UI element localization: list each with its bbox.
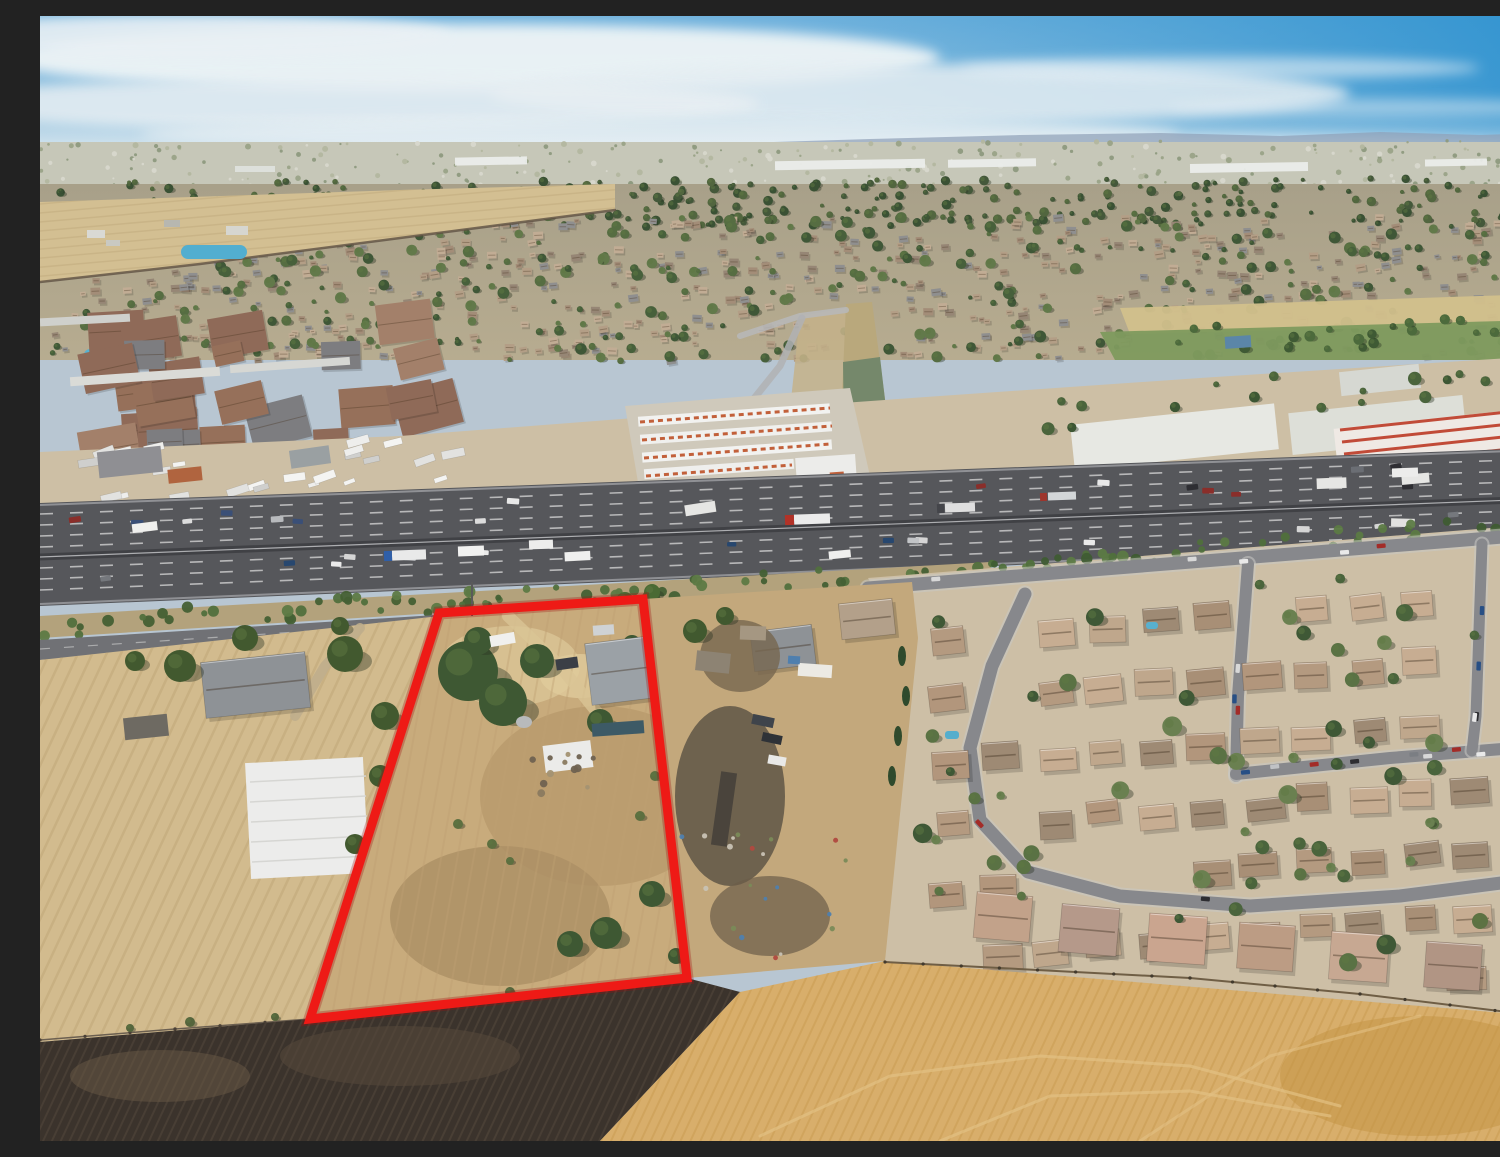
- warehouse: [455, 156, 527, 165]
- neighbor-shed: [695, 650, 731, 673]
- scene-layers: [40, 16, 1500, 1141]
- warehouse: [235, 166, 275, 172]
- semi-trailer: [945, 502, 975, 512]
- farm-shed: [123, 714, 169, 740]
- apartment-pool: [181, 245, 247, 259]
- box-truck: [1392, 468, 1418, 478]
- semi-trailer: [392, 549, 426, 560]
- tanker-cab: [1040, 493, 1047, 501]
- rv-camper: [798, 663, 833, 678]
- warehouse: [1425, 158, 1487, 166]
- field-structure: [106, 240, 120, 246]
- backyard-pool: [1146, 622, 1158, 629]
- field-structure: [164, 220, 180, 227]
- neighbor-shed: [740, 626, 766, 641]
- aerial-photo: [40, 16, 1500, 1141]
- blue-roof-building: [1225, 335, 1252, 349]
- tanker-truck: [1048, 492, 1076, 501]
- backyard-pool: [945, 731, 959, 739]
- semi-cab-blue: [384, 551, 392, 561]
- debris-dark-patch: [710, 876, 830, 956]
- cypress: [902, 686, 910, 706]
- semi-cab-dark: [937, 504, 944, 513]
- silver-car: [593, 624, 615, 635]
- farmhouse: [200, 652, 314, 722]
- two-story-house: [1423, 941, 1485, 995]
- field-structure: [226, 226, 248, 235]
- cypress: [894, 726, 902, 746]
- cloud-wisp: [960, 57, 1480, 79]
- neighbor-house: [838, 598, 899, 643]
- water-tank: [516, 716, 532, 728]
- warehouse: [948, 158, 1036, 168]
- semi-cab-red: [785, 515, 794, 525]
- semi-trailer: [794, 513, 830, 524]
- box-truck: [458, 546, 484, 557]
- field-structure: [87, 230, 105, 238]
- burnt-light-patch: [70, 1050, 250, 1102]
- cypress: [888, 766, 896, 786]
- blue-tarp: [788, 656, 801, 665]
- two-story-house: [1058, 904, 1123, 961]
- two-story-house: [1236, 922, 1298, 976]
- box-truck: [529, 540, 553, 550]
- burnt-light-patch: [280, 1026, 520, 1086]
- cypress: [898, 646, 906, 666]
- aerial-photo-canvas: [40, 16, 1500, 1141]
